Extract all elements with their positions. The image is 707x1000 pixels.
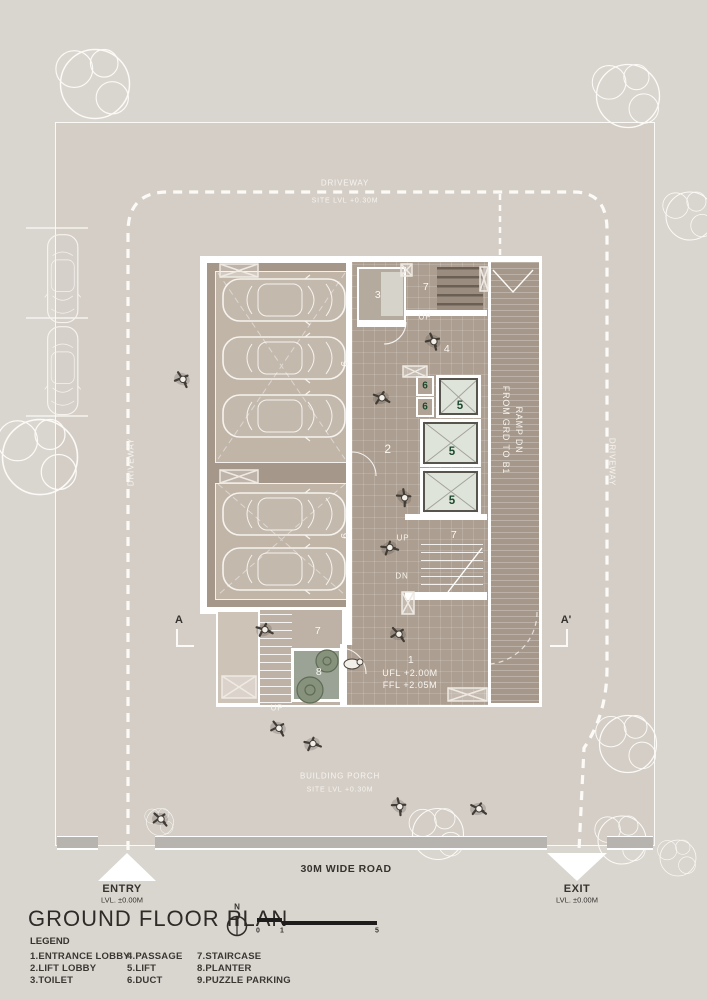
stair-mid-up-label: UP [397,534,410,543]
toilet-counter [381,272,403,316]
wall-above-stair-mid [405,514,487,520]
driveway-top-label: DRIVEWAY [321,179,369,188]
floor-plan-canvas: DRIVEWAY SITE LVL +0.30M DRIVEWAY DRIVEW… [0,0,707,1000]
parking-lower-number: 9 [338,533,350,539]
legend-item: 4.PASSAGE [127,951,182,963]
planter-strip [216,610,260,705]
porch-up-label: UP [271,704,284,713]
duct-2-number: 6 [422,402,428,413]
room-passage-number: 4 [444,343,450,355]
legend-column-1: 1.ENTRANCE LOBBY 2.LIFT LOBBY 3.TOILET [30,951,130,987]
legend-column-3: 7.STAIRCASE 8.PLANTER 9.PUZZLE PARKING [197,951,291,987]
legend-item: 5.LIFT [127,963,182,975]
exit-label: EXIT [564,883,590,895]
duct-1-number: 6 [422,381,428,392]
scale-tick-0: 0 [256,928,260,935]
entry-level-label: LVL. ±0.00M [101,896,143,905]
site-wall-mid [155,836,547,850]
legend-title: LEGEND [30,936,70,947]
legend-item: 1.ENTRANCE LOBBY [30,951,130,963]
entrance-ufl-label: UFL +2.00M [382,668,437,678]
scale-tick-5: 5 [375,928,379,935]
parking-bay-upper [215,271,348,463]
entrance-ffl-label: FFL +2.05M [383,680,437,690]
exit-level-label: LVL. ±0.00M [556,896,598,905]
lift-2-number: 5 [449,446,455,458]
legend-column-2: 4.PASSAGE 5.LIFT 6.DUCT [127,951,182,987]
room-lift-lobby-number: 2 [384,442,391,456]
lift-3-number: 5 [449,495,455,507]
ramp-label-line1: RAMP DN [512,386,525,474]
ramp-label: RAMP DN FROM GRD TO B1 [499,386,525,474]
building-porch-sublabel: SITE LVL +0.30M [307,787,374,794]
scale-tick-1: 1 [280,928,284,935]
road-label: 30M WIDE ROAD [300,863,391,875]
exit-arrow-icon [547,853,607,881]
parking-upper-number: 9 [338,361,350,367]
lift-2-box [420,419,481,467]
parking-bay-lower [215,483,348,600]
stair-mid-treads [421,544,483,594]
north-compass-icon [225,912,251,940]
room-stair-mid-number: 7 [451,529,457,541]
ramp-label-line2: FROM GRD TO B1 [499,386,512,474]
room-stair-top-number: 7 [423,281,429,293]
legend-item: 7.STAIRCASE [197,951,291,963]
driveway-left-label: DRIVEWAY [127,438,136,486]
legend-item: 9.PUZZLE PARKING [197,975,291,987]
section-a-label: A [175,614,183,626]
room-planter-number: 8 [316,666,322,678]
legend-item: 2.LIFT LOBBY [30,963,130,975]
room-entrance-number: 1 [408,654,414,666]
site-wall-right [607,836,653,850]
room-toilet-number: 3 [375,289,381,301]
stair-top-up-label: UP [419,313,432,322]
site-wall-left [57,836,98,850]
legend-item: 6.DUCT [127,975,182,987]
wall-entrance-left [340,644,347,705]
room-stair-low-number: 7 [315,625,321,637]
scale-bar-segment-1 [257,918,282,922]
building-porch-label: BUILDING PORCH [300,772,380,781]
section-a-prime-label: A' [561,614,572,626]
entry-label: ENTRY [102,883,141,895]
stair-top-treads [437,267,483,312]
lift-3-box [420,468,481,515]
wall-under-toilet [357,320,406,327]
driveway-right-label: DRIVEWAY [608,438,617,486]
stair-mid-dn-label: DN [395,572,408,581]
wall-below-stair-mid [405,592,487,600]
entry-stair-treads [258,614,292,703]
ramp-zone [489,262,541,703]
legend-item: 3.TOILET [30,975,130,987]
entry-arrow-icon [98,853,156,881]
legend-item: 8.PLANTER [197,963,291,975]
scale-bar-segment-2 [282,921,377,925]
north-label: N [234,903,240,912]
driveway-top-sublabel: SITE LVL +0.30M [312,198,379,205]
lift-1-number: 5 [457,400,463,412]
